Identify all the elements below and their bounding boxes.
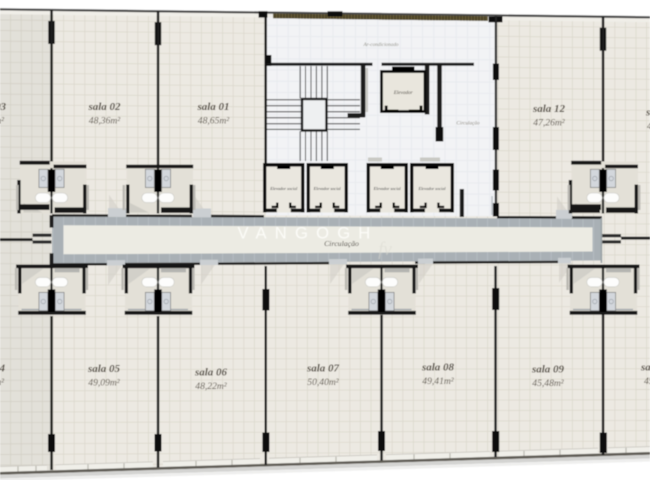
svg-text:Elevador social: Elevador social: [373, 186, 402, 191]
svg-text:sala 06: sala 06: [194, 367, 228, 379]
svg-text:48,36m²: 48,36m²: [0, 115, 4, 126]
svg-text:sala 09: sala 09: [531, 364, 565, 376]
svg-text:49,70m²: 49,70m²: [0, 377, 4, 388]
svg-text:48,36m²: 48,36m²: [89, 115, 121, 126]
svg-text:48,65m²: 48,65m²: [198, 115, 230, 126]
svg-text:45,48m²: 45,48m²: [644, 376, 650, 387]
svg-text:sala 04: sala 04: [0, 363, 5, 375]
svg-text:sala 01: sala 01: [196, 101, 229, 113]
svg-text:50,40m²: 50,40m²: [307, 377, 339, 388]
svg-text:Elevador social: Elevador social: [417, 186, 446, 191]
svg-text:sala 13: sala 13: [645, 107, 650, 119]
svg-text:sala 05: sala 05: [87, 363, 121, 375]
svg-text:Elevador: Elevador: [393, 90, 414, 96]
svg-text:Circulação: Circulação: [456, 121, 480, 127]
svg-text:Circulação: Circulação: [324, 239, 359, 248]
svg-text:48,22m²: 48,22m²: [195, 381, 227, 392]
svg-text:Elevador social: Elevador social: [269, 186, 298, 191]
svg-text:fv: fv: [378, 239, 392, 260]
svg-text:sala 07: sala 07: [306, 363, 340, 375]
svg-text:45,48m²: 45,48m²: [532, 378, 564, 389]
svg-text:Ar-condicionado: Ar-condicionado: [362, 42, 398, 48]
svg-text:sala 03: sala 03: [0, 101, 6, 113]
svg-text:49,09m²: 49,09m²: [88, 377, 120, 388]
svg-text:sala 08: sala 08: [421, 362, 455, 374]
svg-text:49,41m²: 49,41m²: [422, 376, 454, 387]
svg-text:sala 12: sala 12: [532, 103, 566, 115]
svg-text:47,26m²: 47,26m²: [533, 117, 565, 128]
svg-text:sala 02: sala 02: [87, 101, 121, 113]
svg-text:Elevador social: Elevador social: [313, 186, 342, 191]
svg-text:sala 10: sala 10: [640, 362, 650, 374]
